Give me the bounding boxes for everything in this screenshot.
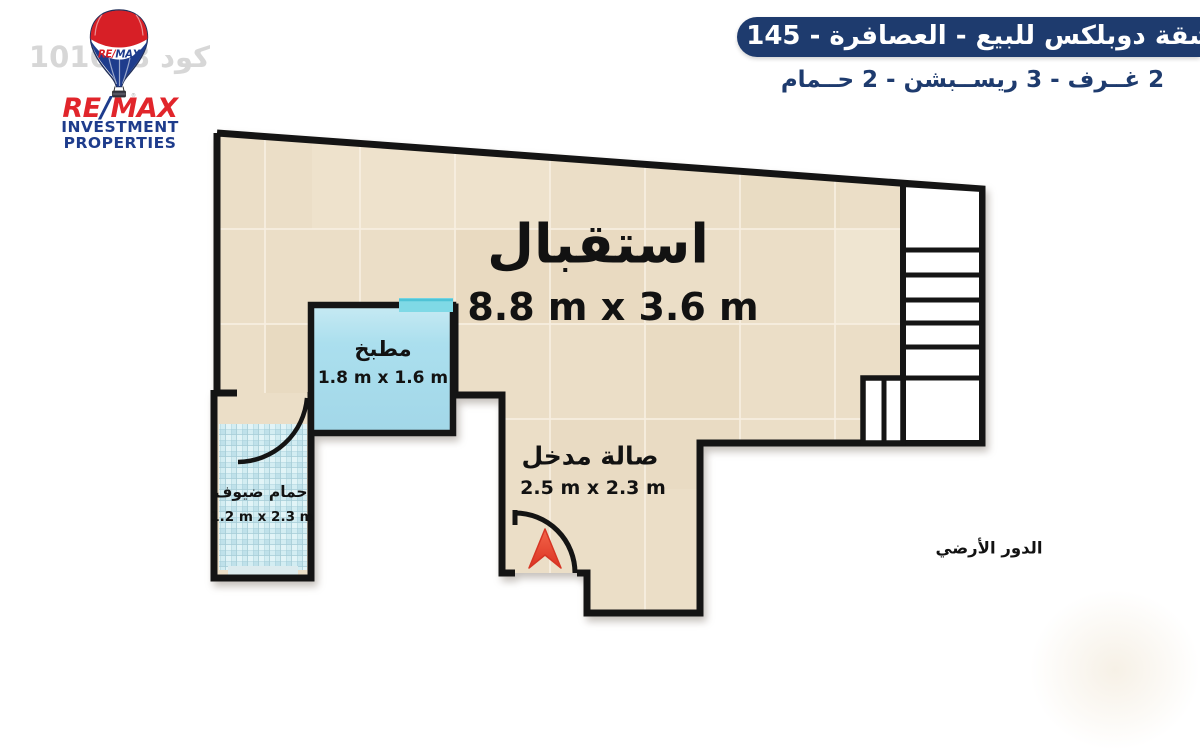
- reception-name-label: استقبال: [487, 213, 709, 276]
- entry-hall-dims-label: 2.5 m x 2.3 m: [520, 477, 666, 499]
- kitchen-dims-label: 1.8 m x 1.6 m: [318, 368, 448, 388]
- floor-level-label: الدور الأرضي: [936, 539, 1043, 558]
- logo-line-investment: INVESTMENT: [60, 119, 180, 135]
- guest-bath-name-label: حمام ضيوف: [214, 483, 307, 501]
- reception-dims-label: 8.8 m x 3.6 m: [467, 285, 758, 329]
- balloon-band-text: RE/MAX: [98, 50, 142, 61]
- entry-hall-name-label: صالة مدخل: [521, 442, 658, 471]
- kitchen-name-label: مطبخ: [354, 337, 411, 361]
- logo-line-properties: PROPERTIES: [60, 135, 180, 151]
- kitchen-room: [311, 298, 453, 433]
- remax-balloon-icon: RE/MAX ®: [84, 8, 154, 100]
- floor-plan: [0, 0, 1200, 750]
- guest-bath-dims-label: 1.2 m x 2.3 m: [210, 509, 313, 525]
